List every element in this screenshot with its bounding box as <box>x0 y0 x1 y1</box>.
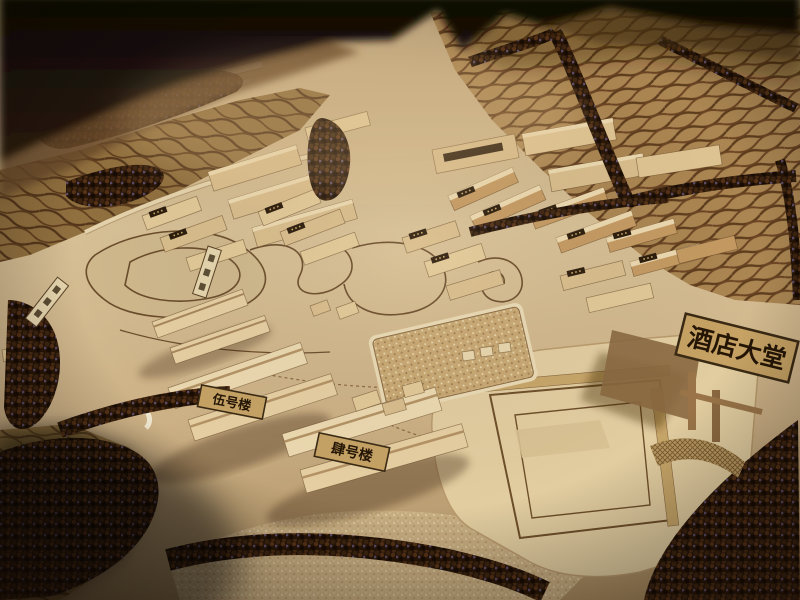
lighting <box>0 0 800 600</box>
model-scene: 酒店大堂 伍号楼 肆号楼 <box>0 0 800 600</box>
model-photo: 酒店大堂 伍号楼 肆号楼 <box>0 0 800 600</box>
vignette-overlay <box>0 0 800 600</box>
